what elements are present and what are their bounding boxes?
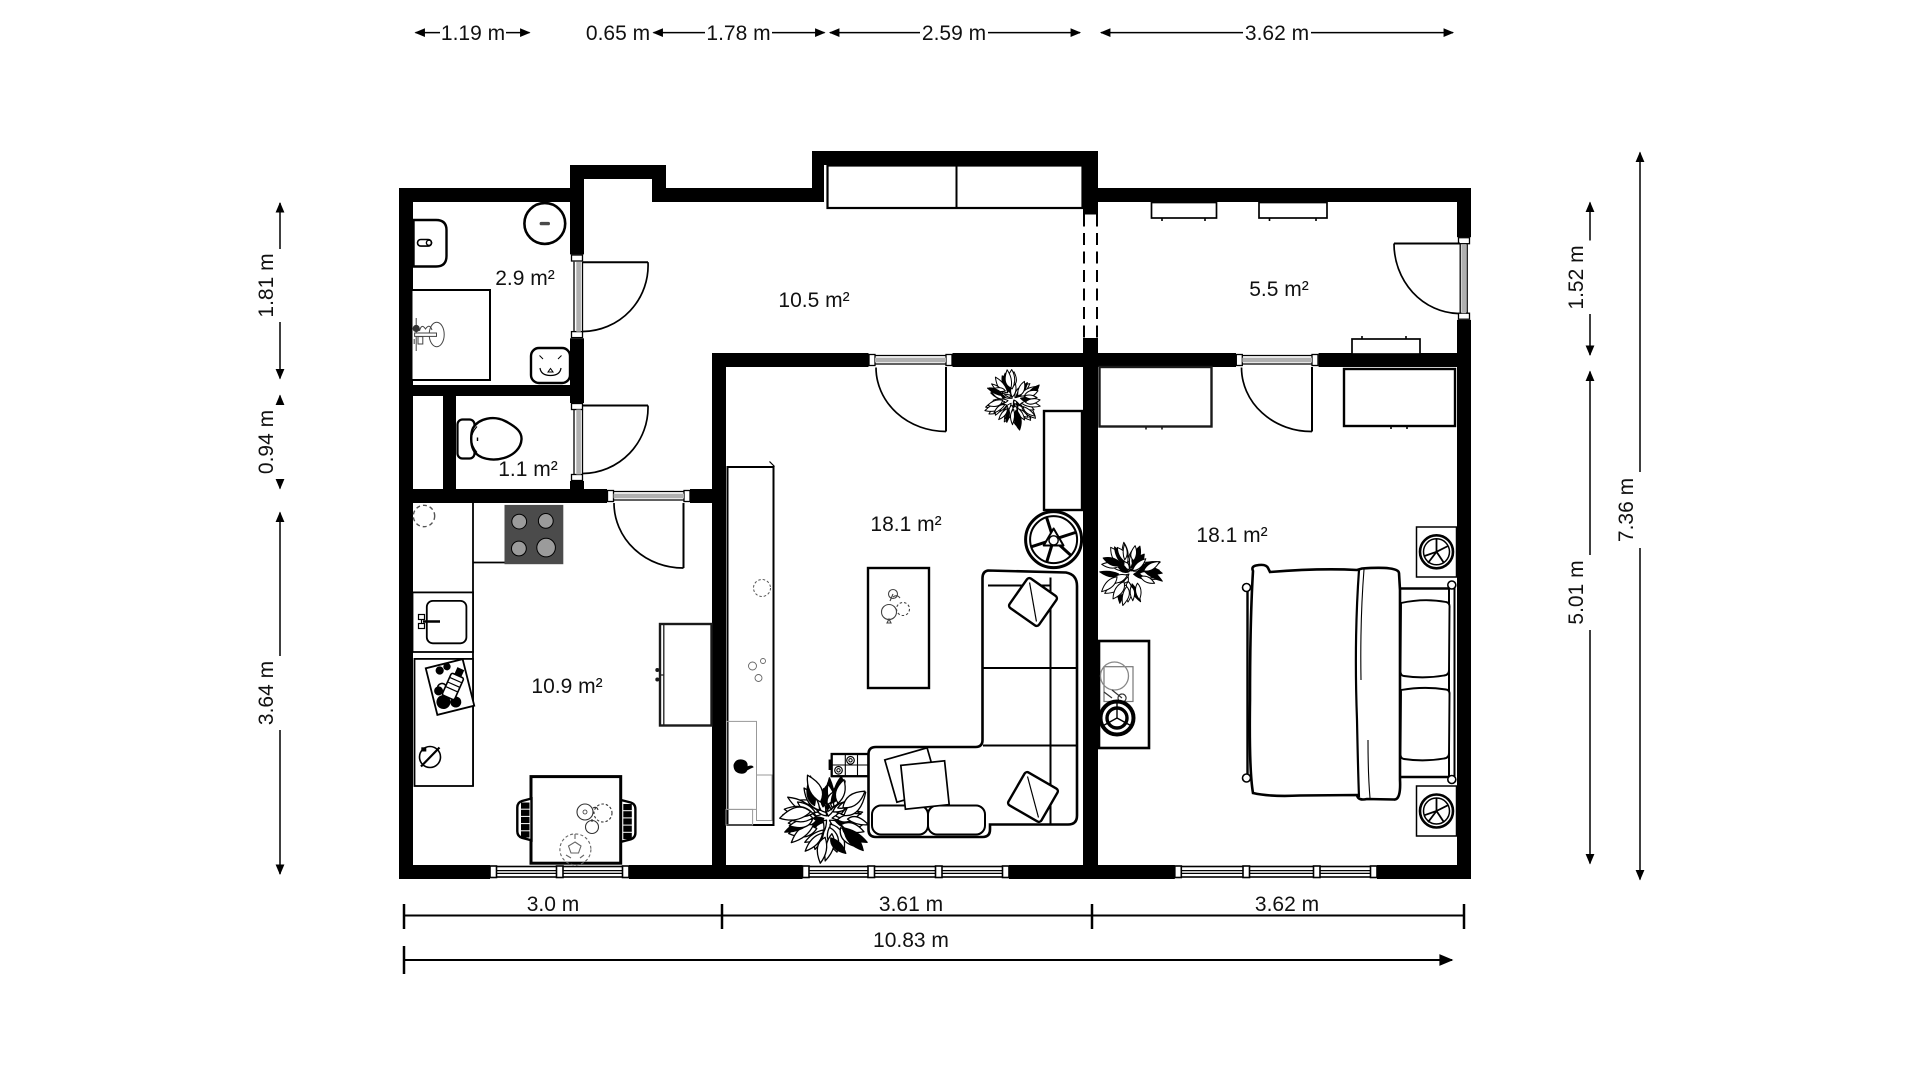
svg-text:1.78 m: 1.78 m (706, 22, 770, 45)
svg-text:5.01 m: 5.01 m (1565, 560, 1588, 624)
svg-text:10.9 m²: 10.9 m² (531, 675, 602, 698)
svg-text:10.5 m²: 10.5 m² (778, 289, 849, 312)
svg-text:0.65 m: 0.65 m (586, 22, 650, 45)
svg-text:1.52 m: 1.52 m (1565, 245, 1588, 309)
svg-text:7.36 m: 7.36 m (1615, 478, 1638, 542)
svg-text:18.1 m²: 18.1 m² (870, 513, 941, 536)
svg-text:1.1 m²: 1.1 m² (498, 458, 558, 481)
svg-text:3.61 m: 3.61 m (879, 893, 943, 916)
svg-text:3.62 m: 3.62 m (1245, 22, 1309, 45)
svg-text:2.59 m: 2.59 m (922, 22, 986, 45)
svg-text:3.64 m: 3.64 m (255, 661, 278, 725)
svg-text:5.5 m²: 5.5 m² (1249, 278, 1309, 301)
svg-text:18.1 m²: 18.1 m² (1196, 524, 1267, 547)
svg-text:3.0 m: 3.0 m (527, 893, 580, 916)
svg-text:0.94 m: 0.94 m (255, 410, 278, 474)
svg-text:3.62 m: 3.62 m (1255, 893, 1319, 916)
svg-text:10.83 m: 10.83 m (873, 929, 949, 952)
svg-text:1.81 m: 1.81 m (255, 253, 278, 317)
svg-text:1.19 m: 1.19 m (441, 22, 505, 45)
svg-text:2.9 m²: 2.9 m² (495, 267, 555, 290)
